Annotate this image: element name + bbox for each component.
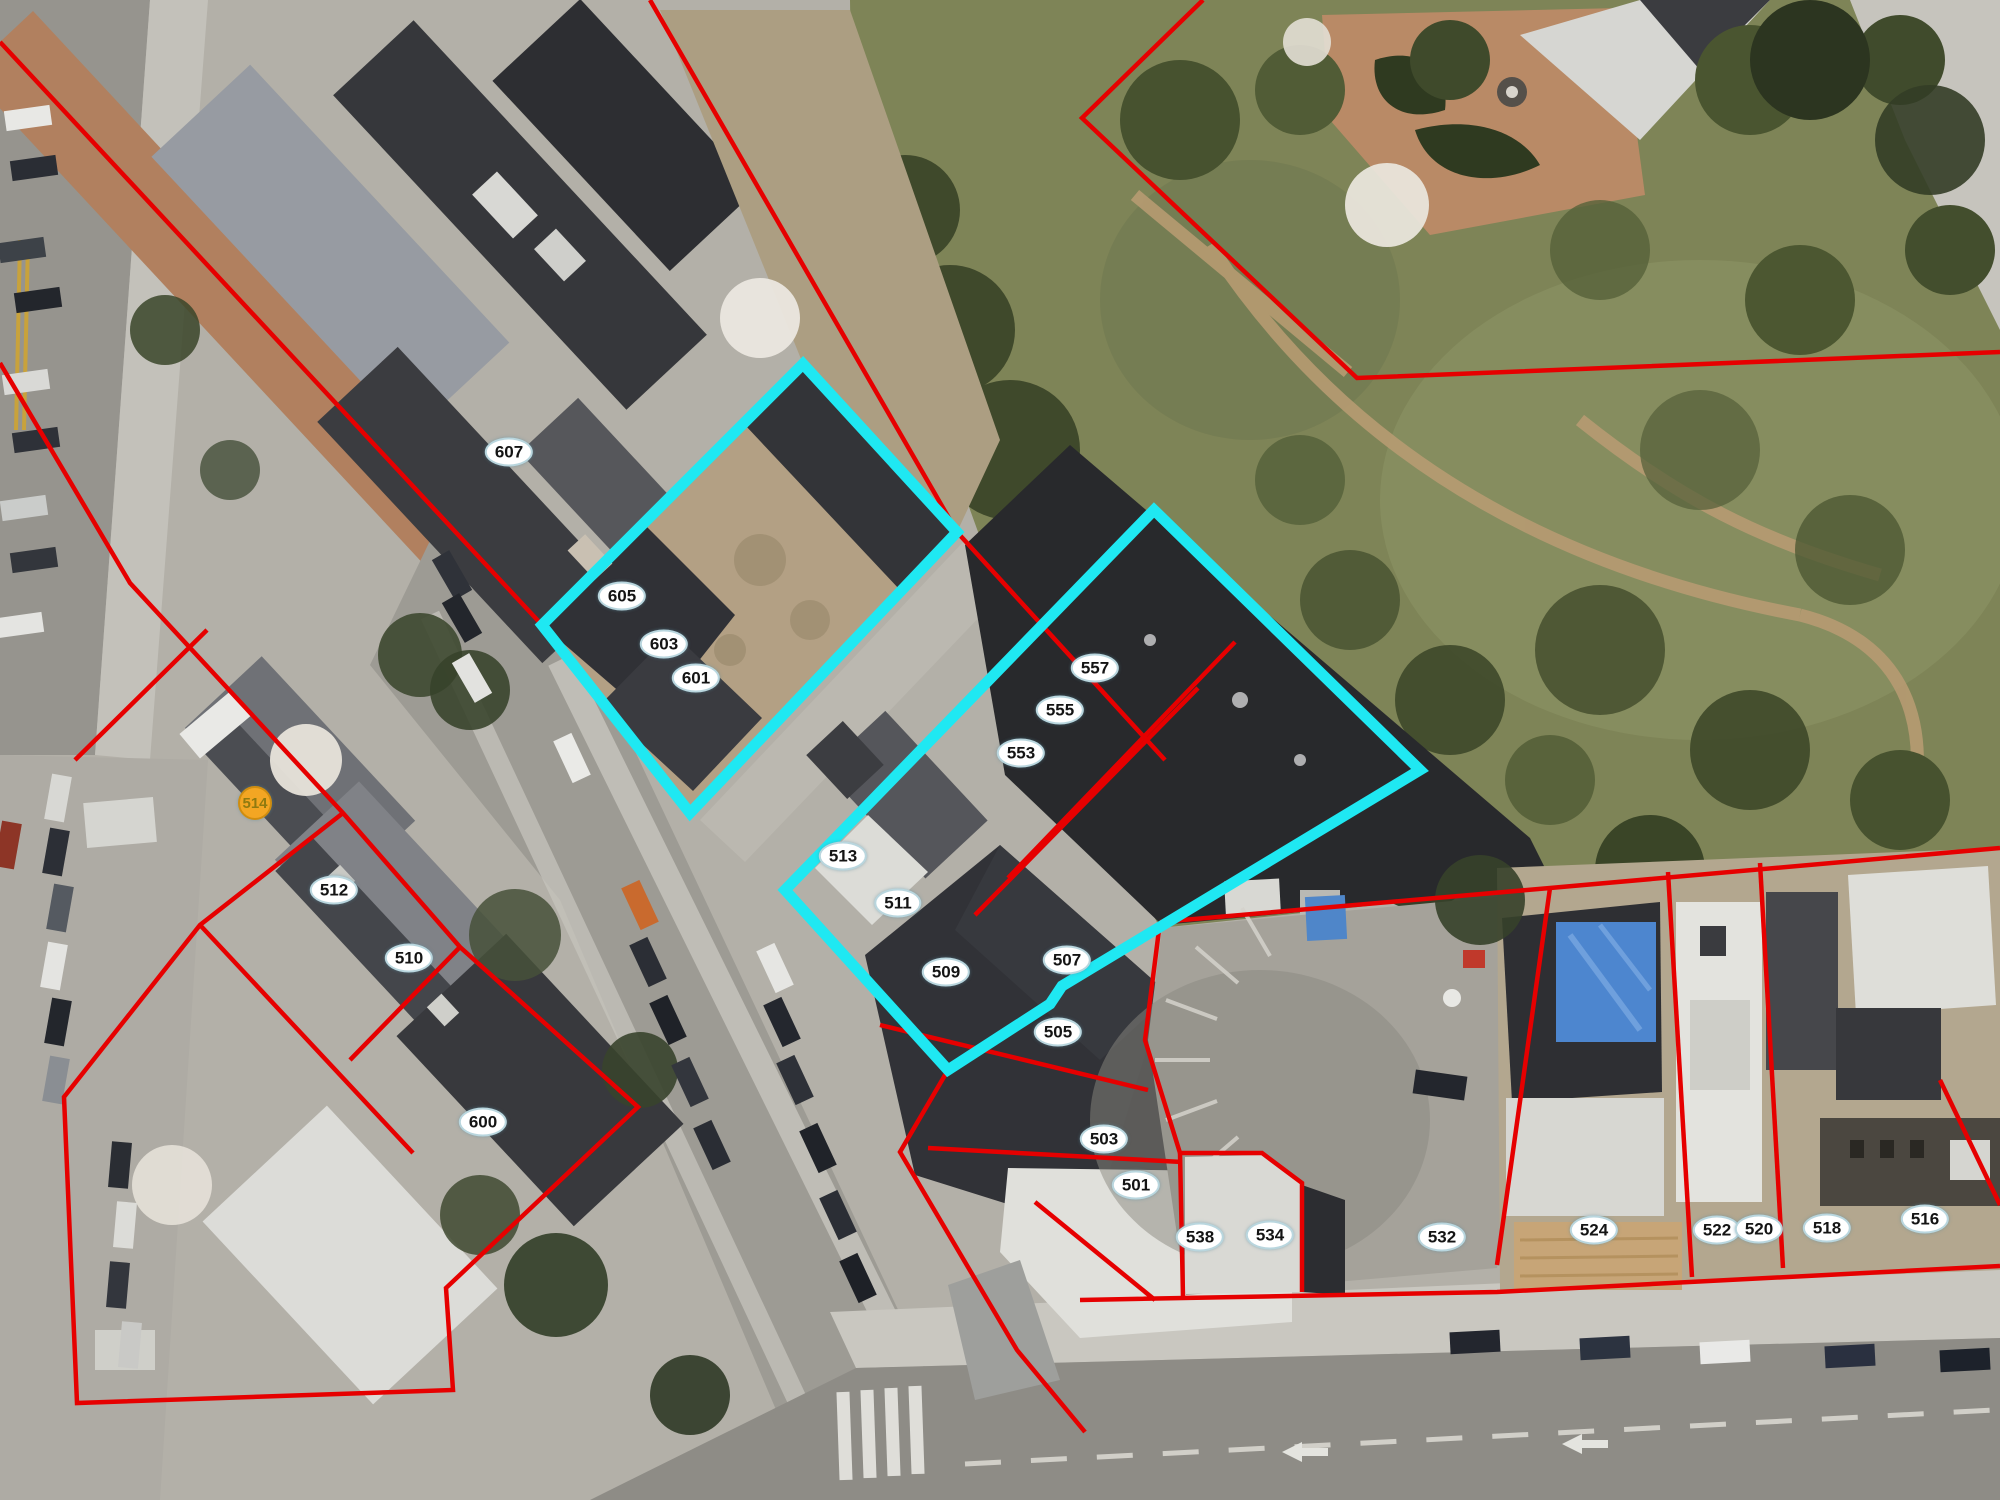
parcel-label-511[interactable]: 511 — [874, 889, 921, 918]
parcel-label-501[interactable]: 501 — [1112, 1171, 1160, 1200]
parcel-label-538[interactable]: 538 — [1176, 1223, 1224, 1252]
parcel-labels-layer: 6076056036015575555535135115095075055035… — [0, 0, 2000, 1500]
parcel-label-509[interactable]: 509 — [922, 958, 970, 987]
parcel-label-603[interactable]: 603 — [640, 630, 688, 659]
parcel-label-507[interactable]: 507 — [1043, 946, 1091, 975]
parcel-label-513[interactable]: 513 — [819, 842, 867, 871]
parcel-label-532[interactable]: 532 — [1418, 1223, 1466, 1252]
parcel-label-605[interactable]: 605 — [598, 582, 646, 611]
parcel-label-557[interactable]: 557 — [1071, 654, 1119, 683]
parcel-label-524[interactable]: 524 — [1570, 1216, 1618, 1245]
parcel-label-553[interactable]: 553 — [997, 739, 1045, 768]
parcel-label-516[interactable]: 516 — [1901, 1205, 1949, 1234]
parcel-label-505[interactable]: 505 — [1034, 1018, 1082, 1047]
parcel-label-520[interactable]: 520 — [1735, 1215, 1783, 1244]
parcel-label-607[interactable]: 607 — [485, 438, 533, 467]
parcel-label-512[interactable]: 512 — [310, 876, 358, 905]
parcel-label-518[interactable]: 518 — [1803, 1214, 1851, 1243]
parcel-label-503[interactable]: 503 — [1080, 1125, 1128, 1154]
parcel-label-510[interactable]: 510 — [385, 944, 433, 973]
parcel-label-600[interactable]: 600 — [459, 1108, 507, 1137]
map-viewport[interactable]: 6076056036015575555535135115095075055035… — [0, 0, 2000, 1500]
parcel-label-601[interactable]: 601 — [672, 664, 720, 693]
parcel-label-534[interactable]: 534 — [1246, 1221, 1294, 1250]
address-point-marker-514[interactable]: 514 — [238, 786, 272, 820]
parcel-label-555[interactable]: 555 — [1036, 696, 1084, 725]
